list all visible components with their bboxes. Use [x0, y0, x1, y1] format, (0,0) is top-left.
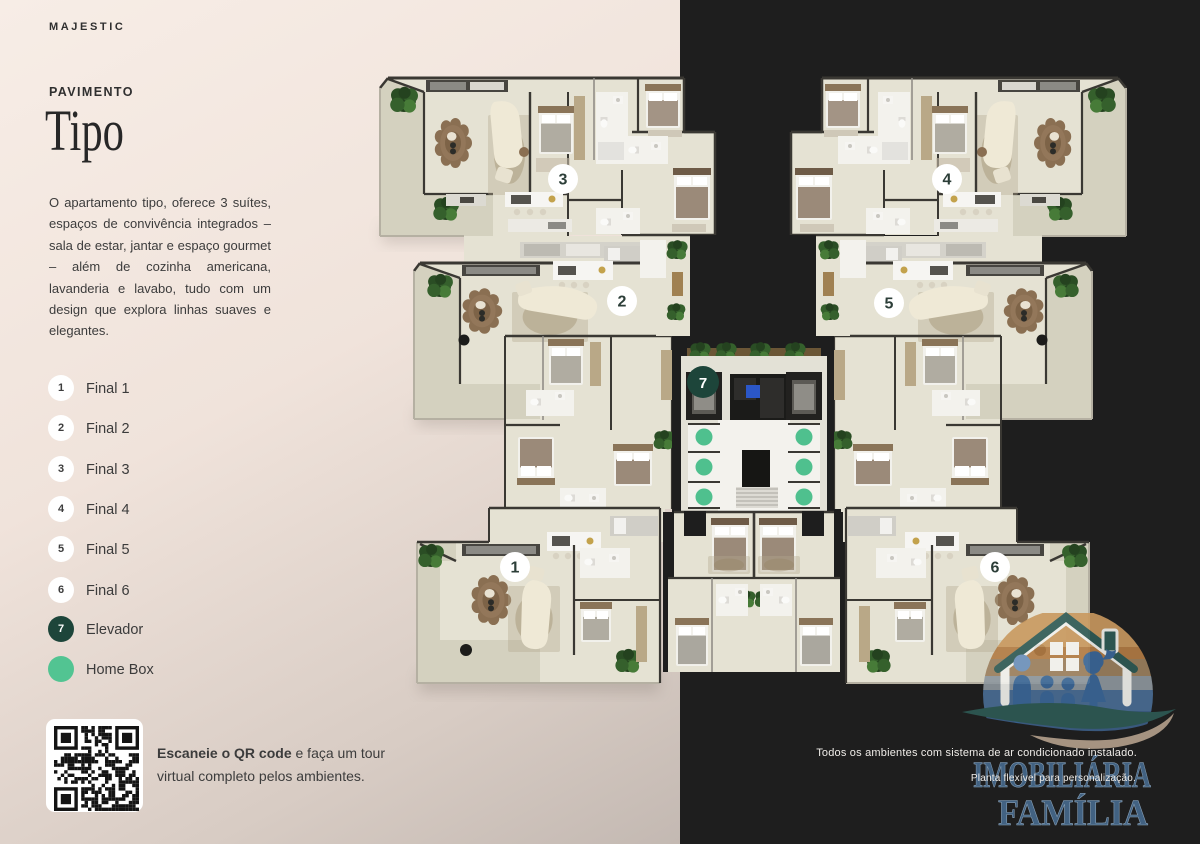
svg-text:6: 6	[991, 560, 1000, 577]
svg-text:3: 3	[559, 172, 568, 189]
svg-text:4: 4	[943, 172, 952, 189]
svg-text:MAJESTIC: MAJESTIC	[49, 21, 125, 33]
svg-text:7: 7	[699, 375, 707, 392]
svg-text:5: 5	[885, 296, 894, 313]
svg-text:PAVIMENTO: PAVIMENTO	[49, 85, 134, 99]
svg-text:FAMÍLIA: FAMÍLIA	[998, 792, 1148, 834]
svg-text:Tipo: Tipo	[45, 98, 124, 163]
svg-text:1: 1	[511, 560, 520, 577]
svg-text:2: 2	[618, 294, 627, 311]
svg-text:Todos os ambientes com sistema: Todos os ambientes com sistema de ar con…	[816, 747, 1137, 759]
svg-text:virtual completo pelos ambient: virtual completo pelos ambientes.	[157, 768, 365, 784]
svg-text:Escaneie o QR code e faça um t: Escaneie o QR code e faça um tour	[157, 745, 385, 761]
svg-text:Planta flexível para personali: Planta flexível para personalização.	[971, 773, 1136, 784]
